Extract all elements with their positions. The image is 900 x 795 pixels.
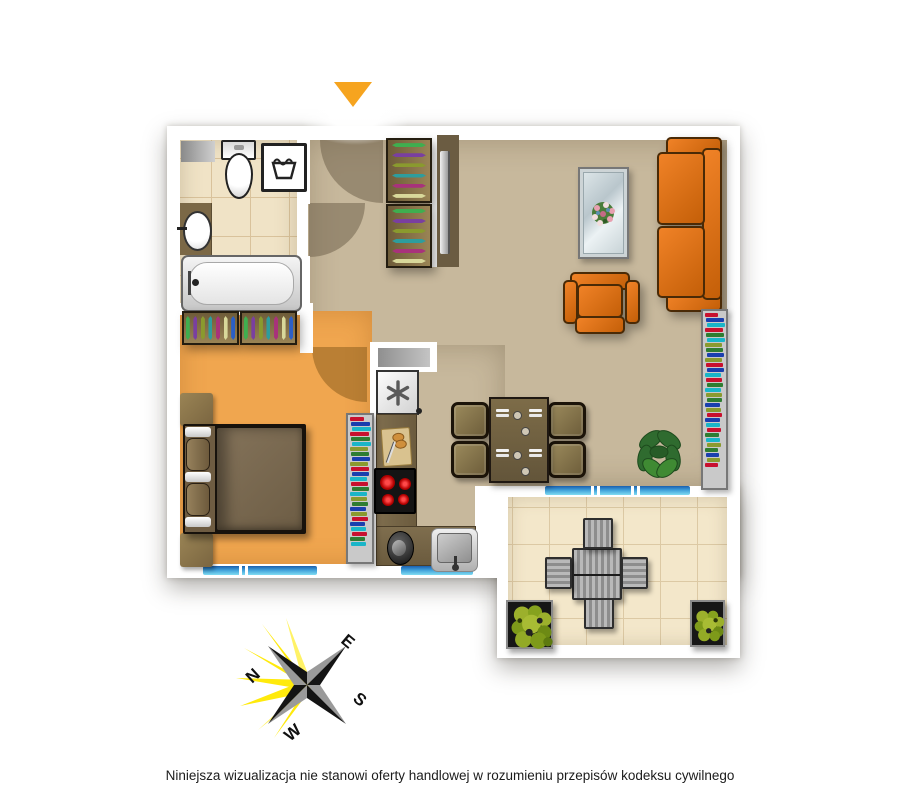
book-spine [706, 318, 724, 322]
clothes-hanger [392, 259, 426, 263]
book-spine [705, 373, 721, 377]
balcony-chair [583, 518, 613, 549]
book-spine [350, 492, 367, 496]
balcony-chair [584, 598, 614, 629]
clothes-hanger [392, 239, 426, 243]
window-mullion [245, 566, 248, 575]
clothes-hanger [392, 194, 426, 198]
window-mullion [591, 486, 594, 495]
clothes-hanger [216, 316, 220, 340]
book-spine [705, 418, 720, 422]
window-mullion [239, 566, 242, 575]
wall [167, 126, 180, 578]
window-mullion [597, 486, 600, 495]
planter-foliage [508, 602, 555, 651]
book-spine [351, 482, 368, 486]
book-spine [352, 457, 370, 461]
bread [395, 439, 408, 449]
book-spine [352, 442, 371, 446]
clothes-hanger [392, 184, 426, 188]
flower-bouquet [586, 196, 620, 230]
bedroom-wardrobe [240, 311, 297, 345]
clothes-hanger [186, 316, 190, 340]
balcony-window [545, 486, 690, 495]
toilet-flush-button [234, 145, 244, 150]
clothes-hanger [251, 316, 255, 340]
table-leaf-split [574, 574, 620, 576]
book-spine [351, 422, 370, 426]
armchair-seat [577, 284, 623, 318]
armchair-armrest [625, 280, 640, 324]
balcony-chair [621, 557, 648, 589]
book-spine [350, 507, 366, 511]
wall [475, 497, 505, 578]
tv [440, 151, 450, 254]
fridge [376, 370, 419, 415]
bathroom-sink [183, 211, 212, 251]
book-spine [705, 463, 718, 467]
plate [513, 451, 522, 460]
nightstand [180, 533, 213, 567]
book-spine [351, 467, 369, 471]
kitchen-sink [431, 528, 478, 572]
book-spine [707, 353, 724, 357]
clothes-hanger [224, 316, 228, 340]
clothes-hanger [392, 249, 426, 253]
book-spine [350, 447, 368, 451]
cutting-board [381, 427, 413, 467]
clothes-hanger [274, 316, 278, 340]
book-spine [706, 333, 724, 337]
bedroom-bookshelf [346, 413, 374, 564]
clothes-hanger [392, 219, 426, 223]
clothes-hanger [266, 316, 270, 340]
living-bookshelf [701, 309, 728, 490]
balcony-table [572, 548, 622, 600]
trash-bin [387, 531, 414, 565]
book-spine [352, 502, 368, 506]
book-spine [707, 443, 721, 447]
plate [513, 411, 522, 420]
clothes-hanger [392, 143, 426, 147]
book-spine [707, 338, 725, 342]
sofa-seat [657, 226, 705, 298]
potted-plant [633, 424, 685, 480]
bed-duvet [217, 428, 302, 530]
compass-label-e: E [337, 631, 358, 653]
window-mullion [631, 486, 634, 495]
book-spine [705, 313, 718, 317]
plate [521, 427, 530, 436]
washing-machine [261, 143, 307, 192]
pillow [185, 472, 211, 482]
dining-chair [451, 402, 489, 439]
clothes-hanger [392, 153, 426, 157]
book-spine [706, 453, 719, 457]
wall [727, 126, 740, 498]
book-spine [352, 532, 367, 536]
planter [506, 600, 553, 649]
burner [399, 478, 411, 490]
book-spine [352, 427, 371, 431]
book-spine [350, 417, 364, 421]
compass-label-n: N [242, 665, 264, 687]
book-spine [351, 542, 366, 546]
book-spine [706, 363, 723, 367]
cutlery [496, 409, 509, 412]
compass-label-s: S [349, 689, 370, 711]
wall [300, 303, 313, 353]
bathroom-cabinet [181, 141, 215, 162]
sofa [655, 135, 725, 315]
sofa-backrest [702, 148, 722, 300]
book-spine [707, 323, 725, 327]
book-spine [705, 358, 722, 362]
pillow [185, 427, 211, 437]
cutlery [496, 449, 509, 452]
bed [183, 424, 306, 534]
book-spine [706, 408, 721, 412]
bedroom-window [203, 566, 317, 575]
book-spine [707, 413, 722, 417]
bedroom-wardrobe [182, 311, 239, 345]
compass-rose-icon: N E S W [228, 610, 386, 765]
book-spine [706, 393, 722, 397]
stove [374, 468, 416, 514]
book-spine [707, 398, 722, 402]
book-spine [706, 348, 723, 352]
balcony-chair [545, 557, 572, 589]
bed-cushion [186, 438, 210, 471]
floorplan-visualization: N E S W Niniejsza wizualizacja nie stano… [0, 0, 900, 795]
cutlery [529, 449, 542, 452]
book-spine [351, 512, 367, 516]
burner [382, 494, 394, 506]
sofa-seat [657, 152, 705, 225]
fridge-asterisk-icon [385, 380, 411, 406]
burner [380, 475, 395, 490]
dining-chair [548, 441, 586, 478]
book-spine [352, 487, 369, 491]
book-spine [705, 343, 722, 347]
book-spine [705, 403, 720, 407]
book-spine [705, 448, 718, 452]
book-spine [351, 497, 367, 501]
coffee-table [578, 167, 629, 259]
book-spine [707, 428, 721, 432]
book-spine [351, 437, 370, 441]
clothes-hanger [392, 229, 426, 233]
sink-faucet [177, 227, 187, 230]
bathtub [181, 255, 302, 312]
bathtub-basin [189, 262, 294, 305]
dining-chair [451, 441, 489, 478]
window-mullion [637, 486, 640, 495]
dining-chair [548, 402, 586, 439]
book-spine [707, 458, 720, 462]
clothes-hanger [392, 163, 426, 167]
planter-foliage [692, 602, 727, 649]
laundry-tub-icon [270, 156, 298, 180]
book-spine [705, 328, 723, 332]
book-spine [350, 522, 365, 526]
book-spine [706, 423, 720, 427]
clothes-hanger [259, 316, 263, 340]
book-spine [705, 433, 719, 437]
nightstand [180, 393, 213, 426]
disclaimer-text: Niniejsza wizualizacja nie stanowi ofert… [0, 768, 900, 783]
bed-cushion [186, 483, 210, 516]
book-spine [352, 472, 369, 476]
hall-wardrobe [386, 138, 432, 203]
clothes-hanger [282, 316, 286, 340]
clothes-hanger [392, 174, 426, 178]
armchair [563, 270, 640, 338]
kitchen-faucet [454, 556, 457, 569]
clothes-hanger [231, 316, 235, 340]
clothes-hanger [201, 316, 205, 340]
book-spine [706, 378, 722, 382]
cutlery [529, 409, 542, 412]
book-spine [352, 517, 368, 521]
clothes-hanger [289, 316, 293, 340]
book-spine [351, 527, 366, 531]
dining-table [489, 397, 549, 483]
knife [386, 442, 396, 464]
book-spine [350, 537, 365, 541]
bathtub-tap [188, 271, 191, 295]
clothes-hanger [193, 316, 197, 340]
bathtub-faucet [192, 279, 199, 286]
book-spine [350, 432, 369, 436]
book-spine [351, 452, 369, 456]
book-spine [350, 477, 367, 481]
book-spine [705, 388, 721, 392]
planter [690, 600, 725, 647]
wall [167, 126, 320, 140]
clothes-hanger [208, 316, 212, 340]
book-spine [707, 383, 723, 387]
book-spine [350, 462, 368, 466]
clothes-hanger [392, 209, 426, 213]
armchair-cushion [575, 316, 625, 334]
hall-wardrobe [386, 204, 432, 268]
trash-lid [392, 540, 406, 556]
plate [521, 467, 530, 476]
pass-through-panel [378, 348, 430, 367]
clothes-hanger [244, 316, 248, 340]
book-spine [706, 438, 720, 442]
burner [398, 494, 409, 505]
entrance-arrow-icon [334, 82, 372, 107]
pillow [185, 517, 211, 527]
book-spine [707, 368, 724, 372]
